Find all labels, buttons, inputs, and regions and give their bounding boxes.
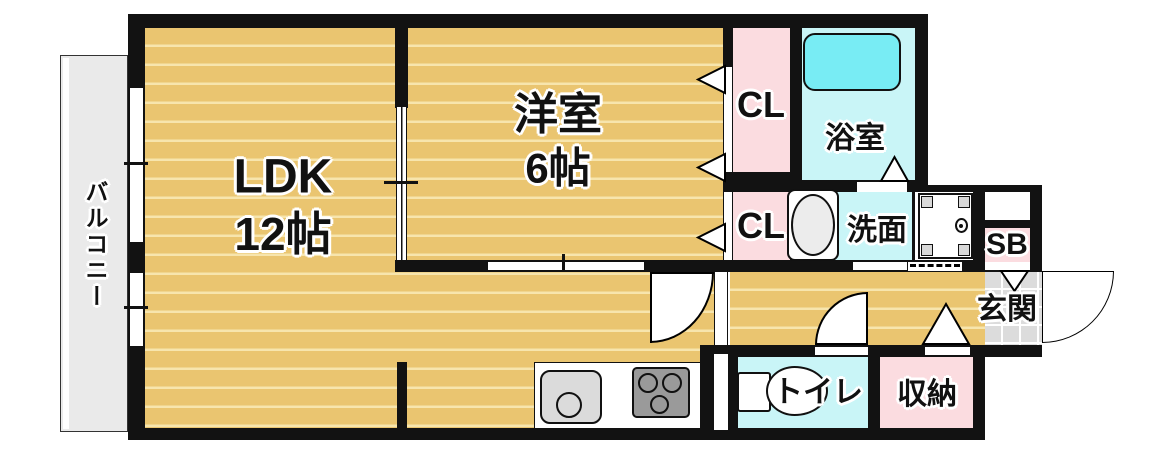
bathroom-doorway [857, 182, 907, 192]
sink-drain-icon [556, 392, 582, 418]
shoe-box-top-wall [985, 220, 1030, 228]
pan-corner [921, 196, 933, 208]
washbasin-icon [791, 194, 835, 256]
pan-corner [958, 244, 970, 256]
closet-upper-door-triangle-2 [697, 153, 727, 182]
washing-machine-pan-icon [918, 193, 973, 259]
balcony-inner-edge [63, 58, 69, 429]
burner-icon [650, 395, 669, 414]
pipe-space [712, 354, 730, 430]
entry-column-top-wall [928, 185, 1042, 192]
kitchen-hall-wall [700, 345, 712, 440]
ldk-size-label: 12帖 [234, 198, 331, 264]
storage-right-wall [973, 352, 985, 432]
right-wall [1030, 185, 1042, 272]
pan-entry-wall [973, 185, 985, 272]
balcony-window-1 [129, 87, 144, 243]
closet-upper-door-triangle-1 [697, 65, 727, 94]
toilet-storage-wall [868, 352, 880, 432]
bathtub-icon [803, 33, 901, 91]
shoe-box-label: SB [986, 228, 1028, 262]
storage-doorway [925, 347, 970, 355]
closet-door-head-stub [723, 22, 733, 67]
pan-drain-dot [959, 224, 963, 228]
western-room-name-label: 洋室 [514, 78, 602, 142]
window-1-tick [124, 162, 148, 165]
balcony-window-2 [129, 272, 144, 347]
pan-corner [958, 196, 970, 208]
ldk-hall-doorway [714, 272, 728, 345]
toilet-label: トイレ [773, 367, 863, 411]
closet-lower-label: CL [737, 205, 785, 247]
bathroom-door-triangle [880, 156, 909, 183]
partition-sliding-door [396, 107, 407, 260]
washroom-label: 洗面 [847, 205, 907, 249]
dashed-line [910, 264, 960, 267]
bottom-wall [128, 428, 985, 440]
ldk-name-label: LDK [234, 150, 333, 205]
burner-icon [662, 373, 682, 393]
kitchen-end-stub [397, 362, 407, 428]
bathroom-right-wall [915, 14, 928, 192]
western-room-size-label: 6帖 [525, 135, 590, 196]
entry-side-room-floor [985, 192, 1030, 220]
pan-corner [921, 244, 933, 256]
stove-icon [632, 367, 690, 418]
washroom-doorway [853, 261, 907, 271]
entrance-door-swing-arc [1042, 271, 1114, 343]
closet-lower-door-triangle [697, 223, 727, 252]
window-2-tick [124, 306, 148, 309]
burner-icon [638, 373, 658, 393]
western-room-sliding-door [487, 261, 645, 271]
top-wall [128, 14, 928, 28]
entrance-label: 玄関 [977, 284, 1037, 328]
partition-door-tick [384, 181, 418, 184]
floor-plan: バルコニー LDK 12帖 洋室 6帖 CL CL 浴室 洗面 SB 玄関 トイ… [0, 0, 1167, 456]
ldk-western-partition-stub [395, 28, 408, 108]
bathroom-label: 浴室 [825, 113, 885, 157]
closet-divider-wall [723, 172, 800, 192]
storage-label: 収納 [897, 369, 957, 413]
sliding-door-tick [562, 254, 565, 271]
toilet-doorway [815, 347, 868, 355]
closet-upper-label: CL [737, 84, 785, 126]
balcony-label: バルコニー [78, 180, 112, 310]
storage-door-triangle [922, 303, 970, 346]
